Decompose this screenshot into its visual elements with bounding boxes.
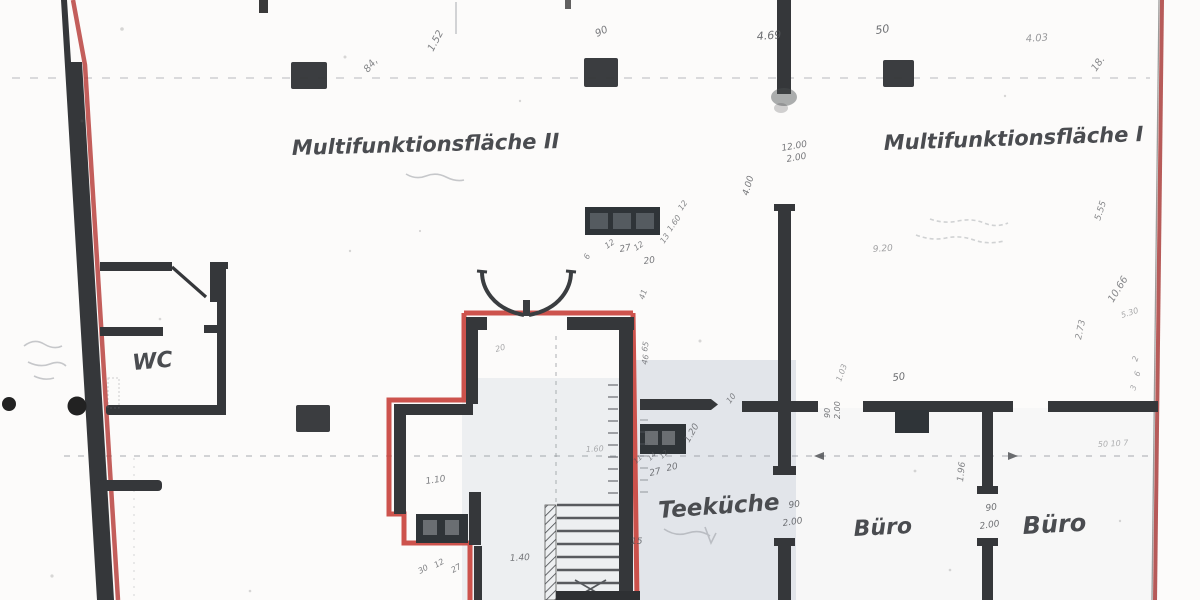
scan-mark-top-left — [259, 0, 268, 13]
pillar — [584, 58, 618, 87]
dim-2-00-rot: 2.00 — [833, 401, 842, 419]
dim-46: 46 — [640, 354, 651, 366]
dim-90-door-rechts: 90 — [985, 502, 998, 514]
dim-50-top: 50 — [875, 22, 891, 37]
dim-1-96: 1.96 — [956, 461, 968, 482]
floorplan-canvas: Multifunktionsfläche II Multifunktionsfl… — [0, 0, 1200, 600]
dim-50-mid: 50 — [892, 371, 906, 384]
dim-4-69: 4.69 — [756, 28, 781, 43]
dim-1-60-faint: 1.60 — [586, 444, 604, 454]
scan-mark-top-center — [565, 0, 571, 9]
room-label-buero-links: Büro — [853, 514, 913, 542]
pillar — [296, 405, 330, 432]
room-label-buero-rechts: Büro — [1022, 509, 1087, 540]
dim-90-door-mitte: 90 — [788, 499, 801, 511]
pillar — [291, 62, 327, 89]
room-label-wc: WC — [131, 348, 173, 376]
pillar — [883, 60, 914, 87]
dim-15: 15 — [631, 537, 643, 547]
dim-1-40: 1.40 — [510, 553, 531, 564]
teekueche-wall-stub — [640, 399, 718, 410]
stair-hatched-wall — [545, 505, 556, 600]
stair-bottom-wall — [556, 591, 640, 600]
dim-65: 65 — [640, 341, 651, 353]
dim-9-20: 9.20 — [873, 244, 894, 255]
wall-pillar — [895, 410, 929, 433]
dim-90-rot: 90 — [823, 408, 832, 418]
dim-20-block: 20 — [643, 255, 656, 267]
wall-center-vertical — [619, 317, 633, 600]
floor-plan-scan: Multifunktionsfläche II Multifunktionsfl… — [0, 0, 1200, 600]
dim-27-block: 27 — [619, 243, 632, 255]
dim-4-03: 4.03 — [1025, 32, 1048, 45]
dim-50-10-7: 50 10 7 — [1098, 438, 1130, 449]
